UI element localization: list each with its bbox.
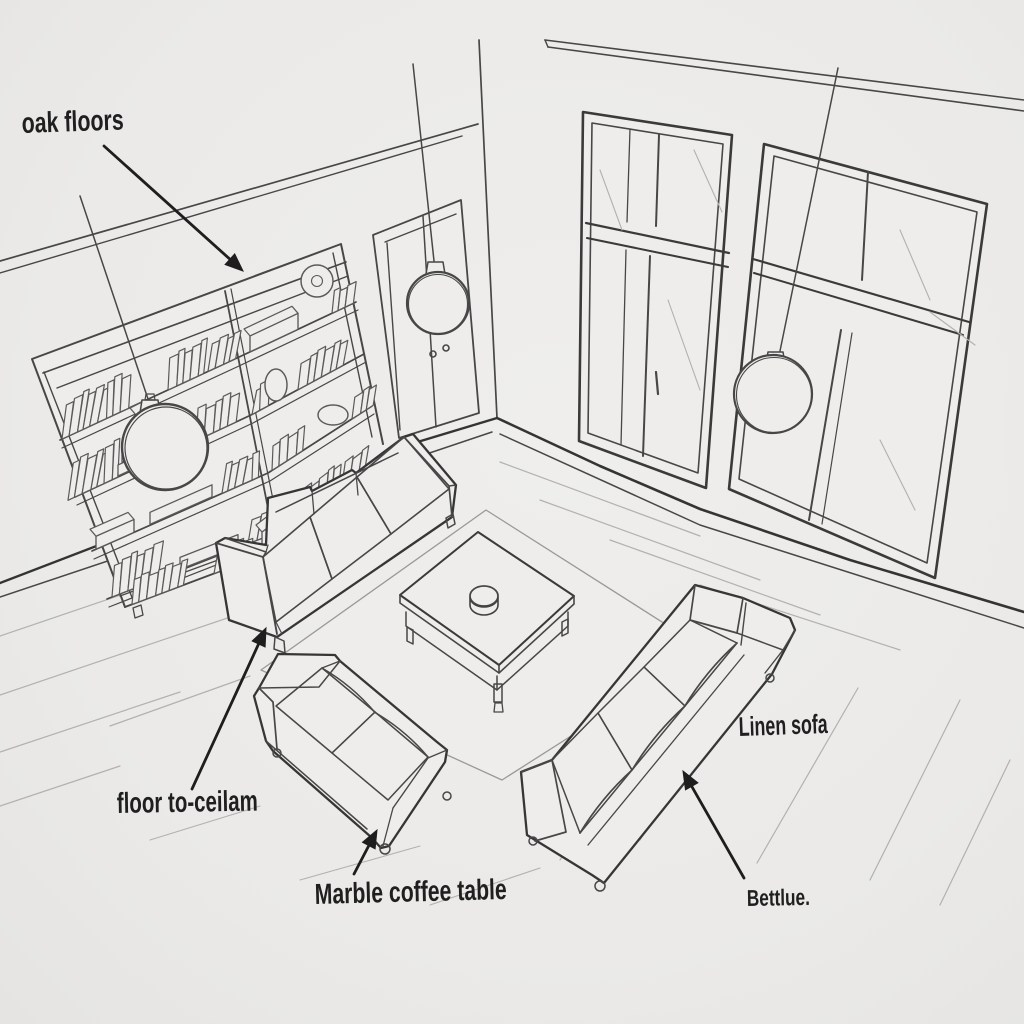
svg-text:Linen sofa: Linen sofa — [738, 709, 829, 742]
svg-text:floor to-ceilam: floor to-ceilam — [117, 786, 259, 820]
svg-text:oak floors: oak floors — [21, 104, 124, 140]
svg-text:Marble coffee table: Marble coffee table — [314, 874, 507, 911]
svg-text:Bettlue.: Bettlue. — [747, 884, 810, 911]
